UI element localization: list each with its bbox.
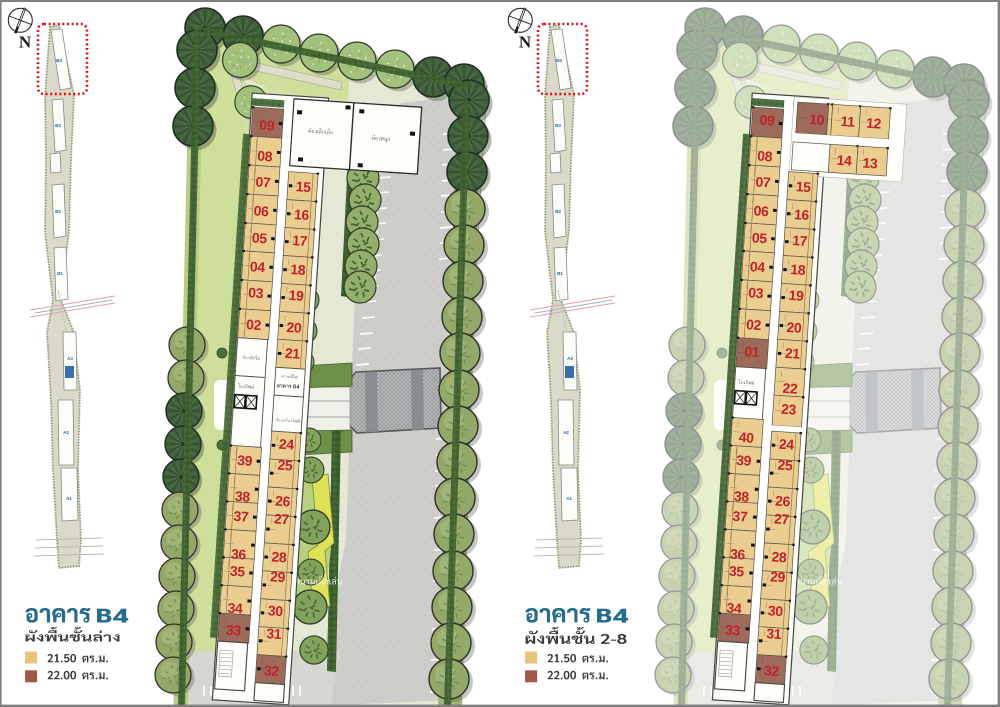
svg-text:13: 13 [862, 154, 878, 171]
svg-text:A3: A3 [67, 356, 73, 361]
svg-text:18: 18 [790, 261, 806, 278]
svg-text:N: N [519, 33, 532, 52]
svg-text:B3: B3 [555, 123, 561, 128]
svg-text:15: 15 [795, 178, 811, 195]
svg-text:21: 21 [784, 345, 800, 362]
svg-text:39: 39 [736, 452, 752, 469]
svg-text:34: 34 [227, 600, 243, 617]
svg-text:15: 15 [295, 178, 311, 195]
svg-text:N: N [19, 33, 32, 52]
svg-text:26: 26 [775, 492, 791, 509]
svg-text:14: 14 [836, 152, 852, 169]
svg-text:A1: A1 [566, 496, 572, 501]
svg-text:27: 27 [274, 510, 290, 527]
svg-text:28: 28 [771, 548, 787, 565]
svg-text:26: 26 [275, 492, 291, 509]
svg-text:09: 09 [259, 117, 275, 134]
svg-text:B1: B1 [57, 271, 63, 276]
svg-text:18: 18 [290, 261, 306, 278]
svg-text:A2: A2 [563, 430, 569, 435]
svg-text:03: 03 [748, 284, 764, 301]
svg-text:32: 32 [764, 662, 780, 679]
svg-text:37: 37 [732, 508, 748, 525]
svg-text:06: 06 [753, 202, 769, 219]
svg-text:08: 08 [257, 148, 273, 165]
svg-text:17: 17 [792, 232, 808, 249]
svg-text:05: 05 [751, 229, 767, 246]
svg-text:07: 07 [255, 174, 271, 191]
svg-text:24: 24 [778, 436, 794, 453]
svg-text:11: 11 [840, 113, 856, 130]
svg-text:40: 40 [738, 429, 754, 446]
svg-text:01: 01 [744, 343, 760, 360]
svg-text:36: 36 [231, 546, 247, 563]
svg-text:34: 34 [726, 600, 742, 617]
svg-text:B4: B4 [56, 58, 62, 63]
svg-text:09: 09 [759, 112, 775, 129]
svg-text:03: 03 [248, 284, 264, 301]
svg-text:20: 20 [786, 319, 802, 336]
svg-text:39: 39 [237, 452, 253, 469]
svg-text:A1: A1 [66, 496, 72, 501]
svg-text:27: 27 [774, 510, 790, 527]
svg-text:33: 33 [725, 621, 741, 638]
svg-text:29: 29 [770, 568, 786, 585]
svg-text:16: 16 [794, 206, 810, 223]
svg-text:07: 07 [755, 174, 771, 191]
svg-text:A2: A2 [63, 430, 69, 435]
svg-text:B2: B2 [555, 209, 561, 214]
svg-text:16: 16 [294, 206, 310, 223]
svg-text:28: 28 [271, 548, 287, 565]
svg-text:04: 04 [749, 258, 765, 275]
svg-text:B1: B1 [557, 271, 563, 276]
svg-text:32: 32 [264, 662, 280, 679]
svg-text:24: 24 [278, 436, 294, 453]
svg-text:22: 22 [782, 380, 798, 397]
svg-text:35: 35 [229, 563, 245, 580]
svg-text:25: 25 [777, 457, 793, 474]
svg-text:19: 19 [788, 287, 804, 304]
svg-text:23: 23 [781, 401, 797, 418]
svg-text:38: 38 [234, 488, 250, 505]
svg-text:31: 31 [266, 625, 282, 642]
svg-text:38: 38 [733, 488, 749, 505]
svg-text:37: 37 [233, 508, 249, 525]
svg-text:06: 06 [253, 202, 269, 219]
svg-text:20: 20 [286, 319, 302, 336]
svg-text:21: 21 [284, 345, 300, 362]
svg-text:04: 04 [249, 258, 265, 275]
svg-text:25: 25 [277, 457, 293, 474]
svg-text:31: 31 [766, 625, 782, 642]
svg-text:36: 36 [730, 546, 746, 563]
svg-text:02: 02 [246, 316, 262, 333]
svg-text:A3: A3 [567, 356, 573, 361]
svg-text:29: 29 [270, 568, 286, 585]
svg-text:B2: B2 [55, 209, 61, 214]
svg-text:35: 35 [728, 563, 744, 580]
svg-text:19: 19 [288, 287, 304, 304]
svg-text:02: 02 [746, 316, 762, 333]
svg-text:30: 30 [267, 602, 283, 619]
svg-text:B4: B4 [556, 58, 562, 63]
svg-text:12: 12 [866, 115, 882, 132]
svg-text:05: 05 [251, 229, 267, 246]
svg-text:17: 17 [292, 232, 308, 249]
svg-text:08: 08 [757, 148, 773, 165]
svg-text:33: 33 [226, 622, 242, 639]
svg-text:30: 30 [767, 602, 783, 619]
svg-text:10: 10 [809, 111, 825, 128]
svg-text:B3: B3 [55, 123, 61, 128]
